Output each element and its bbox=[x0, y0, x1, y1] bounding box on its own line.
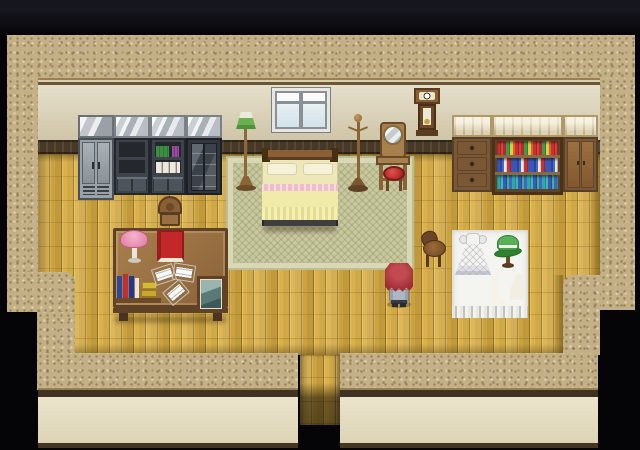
clock-head bbox=[414, 88, 440, 104]
character-foot bbox=[400, 303, 406, 307]
floor-shadow-step-right bbox=[553, 275, 563, 355]
lower-wall-right bbox=[340, 388, 598, 448]
stool-cushion bbox=[383, 166, 405, 181]
stool-wood[interactable] bbox=[420, 231, 447, 269]
floor-lamp-green[interactable] bbox=[234, 112, 258, 193]
bed-blanket bbox=[262, 191, 338, 207]
stool-leg bbox=[386, 179, 389, 191]
photo-frame bbox=[197, 276, 225, 312]
lamp-base bbox=[128, 258, 141, 263]
corridor-shadow bbox=[300, 383, 340, 425]
bed-headboard bbox=[268, 150, 332, 160]
bed-pink-band bbox=[262, 184, 338, 191]
shelf-cavity bbox=[119, 160, 145, 173]
binders bbox=[156, 162, 180, 173]
cabinet-knobs bbox=[577, 161, 585, 165]
wall-right-step bbox=[563, 275, 600, 355]
book-row-1 bbox=[497, 141, 558, 155]
chair-back bbox=[158, 196, 182, 214]
paper-sheet bbox=[162, 279, 190, 306]
purple-books bbox=[172, 146, 179, 157]
bookshelf-right[interactable] bbox=[492, 115, 563, 195]
window-pane-bottom-left bbox=[277, 104, 299, 127]
desk-leg bbox=[213, 313, 222, 321]
display-cabinet[interactable] bbox=[186, 115, 222, 195]
shelf-gloss-top bbox=[150, 115, 186, 138]
red-book bbox=[157, 230, 184, 262]
lamp-base bbox=[236, 185, 256, 191]
lower-wall-face bbox=[38, 397, 298, 443]
character-foot bbox=[392, 303, 398, 307]
stand-base bbox=[348, 185, 368, 192]
clock-base bbox=[416, 130, 438, 136]
bed[interactable] bbox=[262, 148, 338, 232]
desk-shadow bbox=[115, 316, 226, 323]
wall-left-lower bbox=[37, 312, 75, 355]
wall-left-step bbox=[7, 272, 75, 312]
lower-wall-rail bbox=[340, 388, 598, 397]
dresser-drawer bbox=[457, 157, 487, 171]
pattern-piece bbox=[510, 274, 523, 300]
shelf-body bbox=[150, 138, 186, 195]
bed-footboard bbox=[262, 220, 338, 226]
cabinet-body bbox=[186, 138, 222, 195]
shelf-sliding-doors bbox=[117, 177, 147, 191]
door-seam bbox=[131, 179, 133, 191]
void-outside-top bbox=[0, 0, 640, 35]
hat-stand-foot bbox=[502, 263, 514, 268]
spine bbox=[129, 276, 134, 298]
lower-wall-base bbox=[340, 443, 598, 448]
game-viewport bbox=[0, 0, 640, 450]
desk[interactable] bbox=[113, 228, 228, 324]
bed-pillow-left bbox=[267, 163, 297, 175]
shelf-gloss-top bbox=[114, 115, 150, 138]
shelf-cavity bbox=[119, 142, 145, 157]
doorway-exit[interactable] bbox=[300, 425, 340, 450]
stool-leg bbox=[426, 255, 429, 267]
desk-lamp-pink bbox=[120, 230, 148, 264]
clock-face bbox=[419, 92, 435, 100]
bookshelf-top bbox=[492, 115, 563, 137]
spine bbox=[135, 278, 139, 298]
hat-band bbox=[499, 245, 517, 248]
book-row-3 bbox=[497, 175, 558, 189]
window-pane-bottom-right bbox=[303, 104, 325, 127]
desk-leg bbox=[119, 313, 128, 321]
wall-bottom-left bbox=[37, 353, 298, 390]
lower-wall-face bbox=[340, 397, 598, 443]
pattern-tools[interactable] bbox=[492, 272, 524, 308]
wall-right bbox=[600, 78, 635, 310]
shelf-sliding-doors bbox=[153, 177, 183, 191]
dresser-top bbox=[452, 115, 492, 137]
dresser[interactable] bbox=[452, 115, 492, 192]
bookshelf-body bbox=[492, 137, 563, 195]
paper-sheet bbox=[172, 262, 196, 282]
locker[interactable] bbox=[78, 115, 114, 200]
window-pane-top-right bbox=[303, 93, 325, 101]
spine bbox=[123, 274, 128, 298]
lower-wall-base bbox=[38, 443, 298, 448]
vanity-top bbox=[376, 156, 410, 165]
stool-leg bbox=[438, 255, 441, 267]
coat-stand[interactable] bbox=[347, 114, 369, 193]
inner-wall-trim bbox=[38, 78, 600, 85]
glass-doors bbox=[191, 143, 217, 191]
lamp-shade bbox=[235, 112, 257, 129]
hat-crown bbox=[497, 235, 519, 251]
stand-ball bbox=[354, 114, 362, 122]
green-hat[interactable] bbox=[494, 235, 522, 269]
locker-handles bbox=[92, 162, 100, 169]
shelf-unit-books[interactable] bbox=[150, 115, 186, 195]
stool-seat bbox=[423, 240, 446, 257]
shelf-unit-empty[interactable] bbox=[114, 115, 150, 195]
dresser-drawer bbox=[457, 141, 487, 155]
lamp-pole bbox=[244, 129, 247, 177]
book-row-2 bbox=[497, 158, 558, 172]
locker-body bbox=[78, 138, 114, 200]
cabinet-gloss-top bbox=[186, 115, 222, 138]
bed-pillow-right bbox=[303, 163, 333, 175]
stool-leg bbox=[399, 179, 402, 191]
locker-vents bbox=[97, 186, 109, 195]
shelf-body bbox=[114, 138, 150, 195]
cabinet-body bbox=[563, 137, 598, 192]
vanity-mirror bbox=[383, 125, 403, 145]
chair-seat bbox=[160, 213, 180, 226]
shelf-cavity bbox=[155, 160, 181, 173]
pink-shade bbox=[120, 230, 148, 248]
green-books bbox=[156, 146, 169, 157]
spine bbox=[117, 276, 122, 298]
glass-seam bbox=[203, 143, 205, 191]
lower-wall-left bbox=[38, 388, 298, 448]
wall-clock[interactable] bbox=[414, 88, 440, 136]
lower-wall-rail bbox=[38, 388, 298, 397]
stool-red[interactable] bbox=[383, 166, 405, 192]
player-character[interactable] bbox=[384, 263, 414, 308]
cabinet-top bbox=[563, 115, 598, 137]
door-seam bbox=[167, 179, 169, 191]
shelf-cavity bbox=[155, 142, 181, 157]
window-pane-top-left bbox=[277, 93, 299, 101]
locker-top bbox=[78, 115, 114, 138]
wall-left bbox=[7, 78, 38, 272]
window bbox=[272, 88, 330, 132]
stand-pole bbox=[357, 122, 360, 182]
chair-back-hole bbox=[166, 203, 174, 211]
clock-body bbox=[418, 104, 436, 130]
pattern-piece bbox=[492, 276, 505, 304]
desk-chair[interactable] bbox=[158, 196, 182, 230]
bed-ruffle bbox=[262, 207, 338, 220]
dresser-drawer bbox=[457, 173, 487, 187]
wall-bottom-right bbox=[340, 353, 598, 390]
wall-top bbox=[7, 35, 635, 78]
dresser-body bbox=[452, 137, 492, 192]
locker-vents bbox=[83, 186, 95, 195]
pendulum-window bbox=[423, 108, 431, 125]
cabinet-right[interactable] bbox=[563, 115, 598, 192]
lamp-stem bbox=[132, 248, 137, 258]
dress[interactable] bbox=[455, 233, 491, 275]
dress-skirt bbox=[455, 244, 491, 275]
